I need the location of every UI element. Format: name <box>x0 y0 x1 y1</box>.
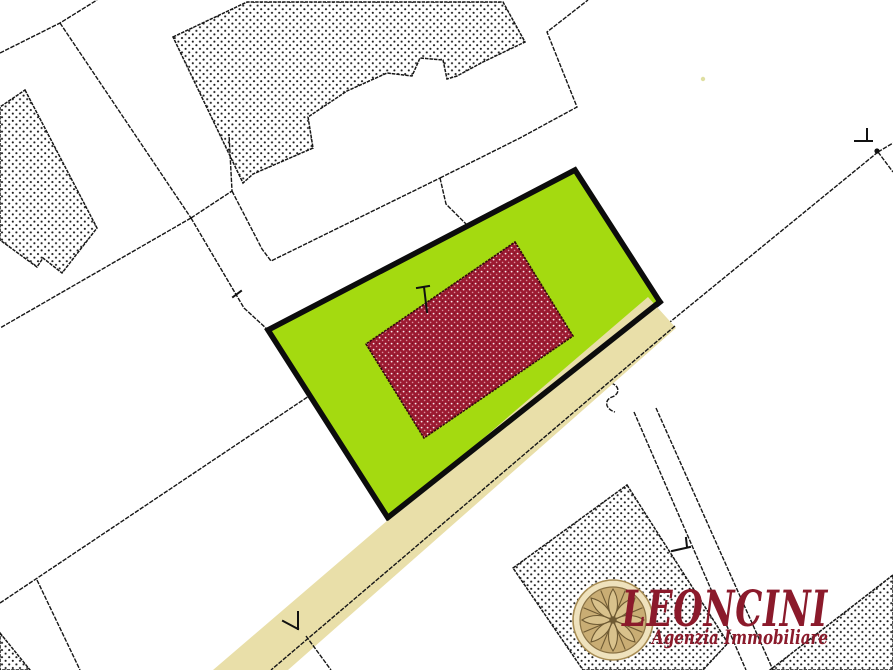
survey-point-dot <box>874 148 879 153</box>
agency-logo: LEONCINI Agenzia Immobiliare <box>573 579 828 660</box>
logo-tagline: Agenzia Immobiliare <box>650 625 828 649</box>
pale-yellow-dot <box>701 77 705 81</box>
cadastral-map: LEONCINI Agenzia Immobiliare <box>0 0 893 670</box>
cadastral-map-canvas: LEONCINI Agenzia Immobiliare <box>0 0 893 670</box>
